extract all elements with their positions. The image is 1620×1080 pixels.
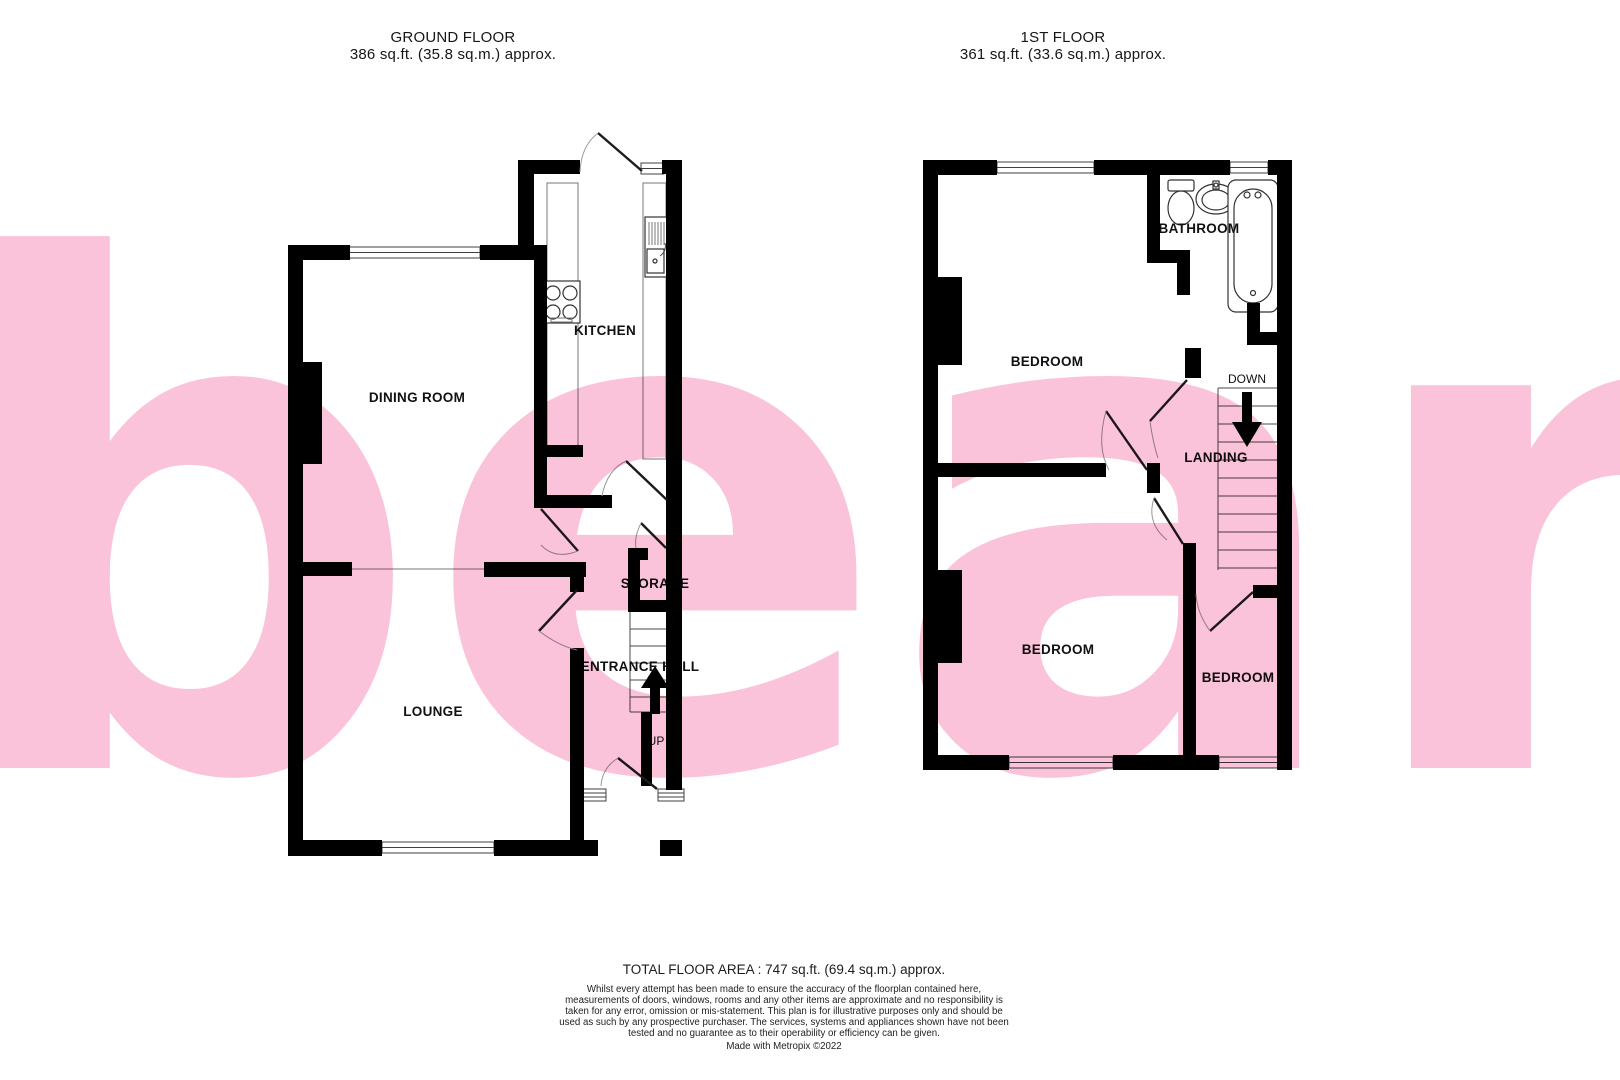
room-label-lounge: LOUNGE <box>403 704 463 719</box>
kitchen-door <box>602 461 667 500</box>
ground-floor-plan: KITCHEN DINING ROOM LOUNGE STORAGE ENTRA… <box>288 133 699 856</box>
window <box>641 163 664 174</box>
window <box>997 162 1094 173</box>
disclaimer-text: Whilst every attempt has been made to en… <box>554 984 1014 1039</box>
toilet-icon <box>1168 180 1194 225</box>
bedroom-1-door <box>1102 411 1147 470</box>
room-label-kitchen: KITCHEN <box>574 323 636 338</box>
floorplan-page: GROUND FLOOR 386 sq.ft. (35.8 sq.m.) app… <box>0 0 1620 1080</box>
footer: TOTAL FLOOR AREA : 747 sq.ft. (69.4 sq.m… <box>554 962 1014 1052</box>
bathtub-icon <box>1228 180 1278 312</box>
room-label-landing: LANDING <box>1184 450 1248 465</box>
bedroom-2-door <box>1152 498 1183 544</box>
chimney-breast <box>938 277 962 365</box>
ground-floor-walls <box>288 160 682 856</box>
room-label-bathroom: BATHROOM <box>1159 221 1240 236</box>
back-door <box>580 133 642 172</box>
dining-door <box>541 509 578 554</box>
window <box>1009 757 1113 768</box>
kitchen-fixtures <box>543 183 668 459</box>
sidelight-window <box>658 789 684 801</box>
lounge-door <box>539 590 577 650</box>
room-label-dining-room: DINING ROOM <box>369 390 465 405</box>
room-label-bedroom-1: BEDROOM <box>1011 354 1084 369</box>
first-floor-plan: BATHROOM BEDROOM BEDROOM BEDROOM LANDING… <box>923 160 1292 770</box>
kitchen-sink-icon <box>645 217 668 277</box>
hob-icon <box>543 281 580 323</box>
floorplan-drawing: KITCHEN DINING ROOM LOUNGE STORAGE ENTRA… <box>0 0 1620 1080</box>
stairs-down-label: DOWN <box>1228 372 1266 386</box>
stairs-down <box>1218 388 1277 570</box>
metropix-credit: Made with Metropix ©2022 <box>554 1041 1014 1052</box>
chimney-breast <box>288 362 322 464</box>
room-label-bedroom-2: BEDROOM <box>1022 642 1095 657</box>
window <box>1230 162 1268 173</box>
total-floor-area: TOTAL FLOOR AREA : 747 sq.ft. (69.4 sq.m… <box>554 962 1014 977</box>
bathroom-door <box>1150 380 1187 458</box>
ground-floor-windows <box>348 163 684 853</box>
window <box>382 842 494 853</box>
first-floor-doors <box>1102 380 1253 631</box>
window <box>348 247 480 258</box>
window <box>1219 757 1284 768</box>
storage-door <box>636 523 666 548</box>
chimney-breast <box>938 570 962 663</box>
bedroom-3-door <box>1196 592 1253 631</box>
room-label-bedroom-3: BEDROOM <box>1202 670 1275 685</box>
down-arrow-icon <box>1232 392 1262 447</box>
